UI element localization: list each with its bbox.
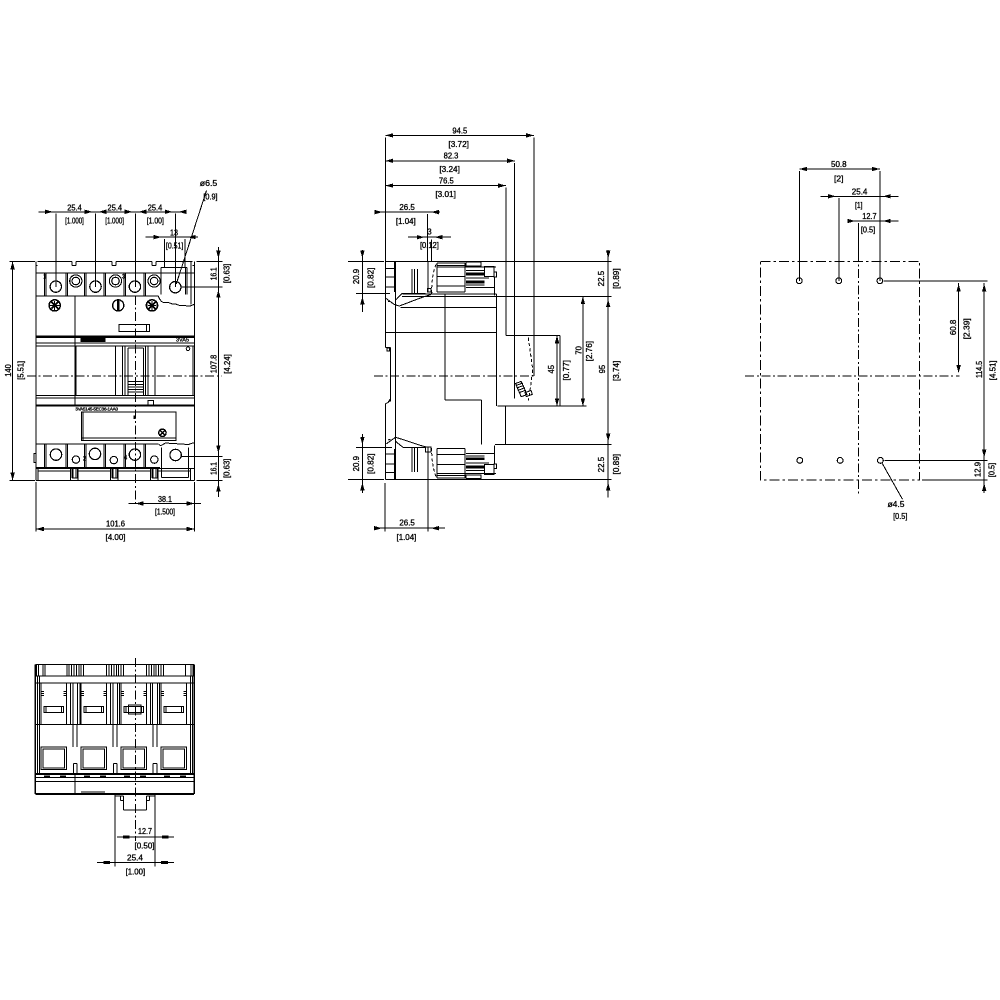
svg-text:22.5: 22.5 xyxy=(596,270,606,286)
svg-text:13: 13 xyxy=(170,227,178,237)
svg-text:[0.82]: [0.82] xyxy=(366,453,375,474)
svg-text:25.4: 25.4 xyxy=(148,202,163,212)
svg-text:82.3: 82.3 xyxy=(444,150,459,160)
svg-text:[2.39]: [2.39] xyxy=(963,318,972,339)
svg-text:[4.24]: [4.24] xyxy=(223,354,232,374)
svg-text:[0.12]: [0.12] xyxy=(420,241,439,250)
svg-text:ø6.5: ø6.5 xyxy=(200,178,218,188)
svg-text:3VA5145-5EC36-1AA0: 3VA5145-5EC36-1AA0 xyxy=(75,407,118,412)
svg-text:70: 70 xyxy=(573,346,583,355)
svg-text:114.5: 114.5 xyxy=(974,361,984,378)
svg-text:[5.51]: [5.51] xyxy=(17,361,26,380)
svg-text:25.4: 25.4 xyxy=(127,852,143,862)
svg-text:[2.76]: [2.76] xyxy=(585,341,594,361)
svg-text:20.9: 20.9 xyxy=(351,268,361,284)
svg-text:[1.04]: [1.04] xyxy=(396,217,416,226)
svg-text:[0.82]: [0.82] xyxy=(366,268,375,289)
svg-text:25.4: 25.4 xyxy=(67,202,82,212)
svg-text:[0.77]: [0.77] xyxy=(562,360,571,380)
svg-text:25.4: 25.4 xyxy=(108,202,123,212)
svg-text:[1.00]: [1.00] xyxy=(147,216,164,225)
svg-text:[0.89]: [0.89] xyxy=(612,454,621,475)
svg-text:[0.5]: [0.5] xyxy=(988,463,997,477)
svg-text:[0.89]: [0.89] xyxy=(612,268,621,289)
svg-text:[1.500]: [1.500] xyxy=(155,508,175,517)
svg-text:50.8: 50.8 xyxy=(831,159,847,169)
svg-text:101.6: 101.6 xyxy=(106,519,125,529)
svg-text:[3.74]: [3.74] xyxy=(612,361,621,381)
svg-text:[0.63]: [0.63] xyxy=(223,459,232,479)
svg-text:12.9: 12.9 xyxy=(973,462,983,478)
svg-text:[4.00]: [4.00] xyxy=(106,533,126,542)
svg-text:16.1: 16.1 xyxy=(209,267,219,280)
svg-text:20.9: 20.9 xyxy=(351,456,361,472)
svg-text:107.8: 107.8 xyxy=(209,354,219,373)
svg-text:[4.51]: [4.51] xyxy=(988,360,997,380)
svg-text:[3.72]: [3.72] xyxy=(448,140,469,149)
svg-text:12.7: 12.7 xyxy=(138,826,152,836)
svg-text:[0.9]: [0.9] xyxy=(203,192,217,201)
svg-text:[1.00]: [1.00] xyxy=(126,867,146,876)
svg-text:[2]: [2] xyxy=(834,174,844,183)
svg-text:94.5: 94.5 xyxy=(452,125,467,135)
svg-text:12.7: 12.7 xyxy=(862,211,877,221)
svg-text:[0.50]: [0.50] xyxy=(135,842,155,851)
svg-text:[0.5]: [0.5] xyxy=(893,512,907,521)
svg-text:[1.04]: [1.04] xyxy=(397,533,417,542)
svg-text:25.4: 25.4 xyxy=(852,187,868,197)
svg-text:[1.000]: [1.000] xyxy=(65,216,84,225)
svg-text:26.5: 26.5 xyxy=(399,202,415,212)
svg-text:[1.000]: [1.000] xyxy=(105,216,124,225)
svg-text:45: 45 xyxy=(546,365,556,374)
svg-text:[1]: [1] xyxy=(855,201,863,210)
svg-text:26.5: 26.5 xyxy=(399,518,415,528)
svg-text:[0.63]: [0.63] xyxy=(223,264,232,284)
svg-text:140: 140 xyxy=(3,364,13,377)
svg-text:38.1: 38.1 xyxy=(158,494,172,504)
svg-text:[3.01]: [3.01] xyxy=(435,190,456,199)
svg-text:95: 95 xyxy=(597,365,607,374)
svg-text:ø4.5: ø4.5 xyxy=(888,499,905,509)
svg-text:76.5: 76.5 xyxy=(439,175,454,185)
svg-text:22.5: 22.5 xyxy=(596,456,606,472)
svg-text:[0.51]: [0.51] xyxy=(166,241,183,250)
svg-text:[3.24]: [3.24] xyxy=(439,165,460,174)
svg-text:[0.5]: [0.5] xyxy=(861,225,875,234)
svg-text:16.1: 16.1 xyxy=(209,462,219,475)
svg-text:60.8: 60.8 xyxy=(948,319,958,335)
